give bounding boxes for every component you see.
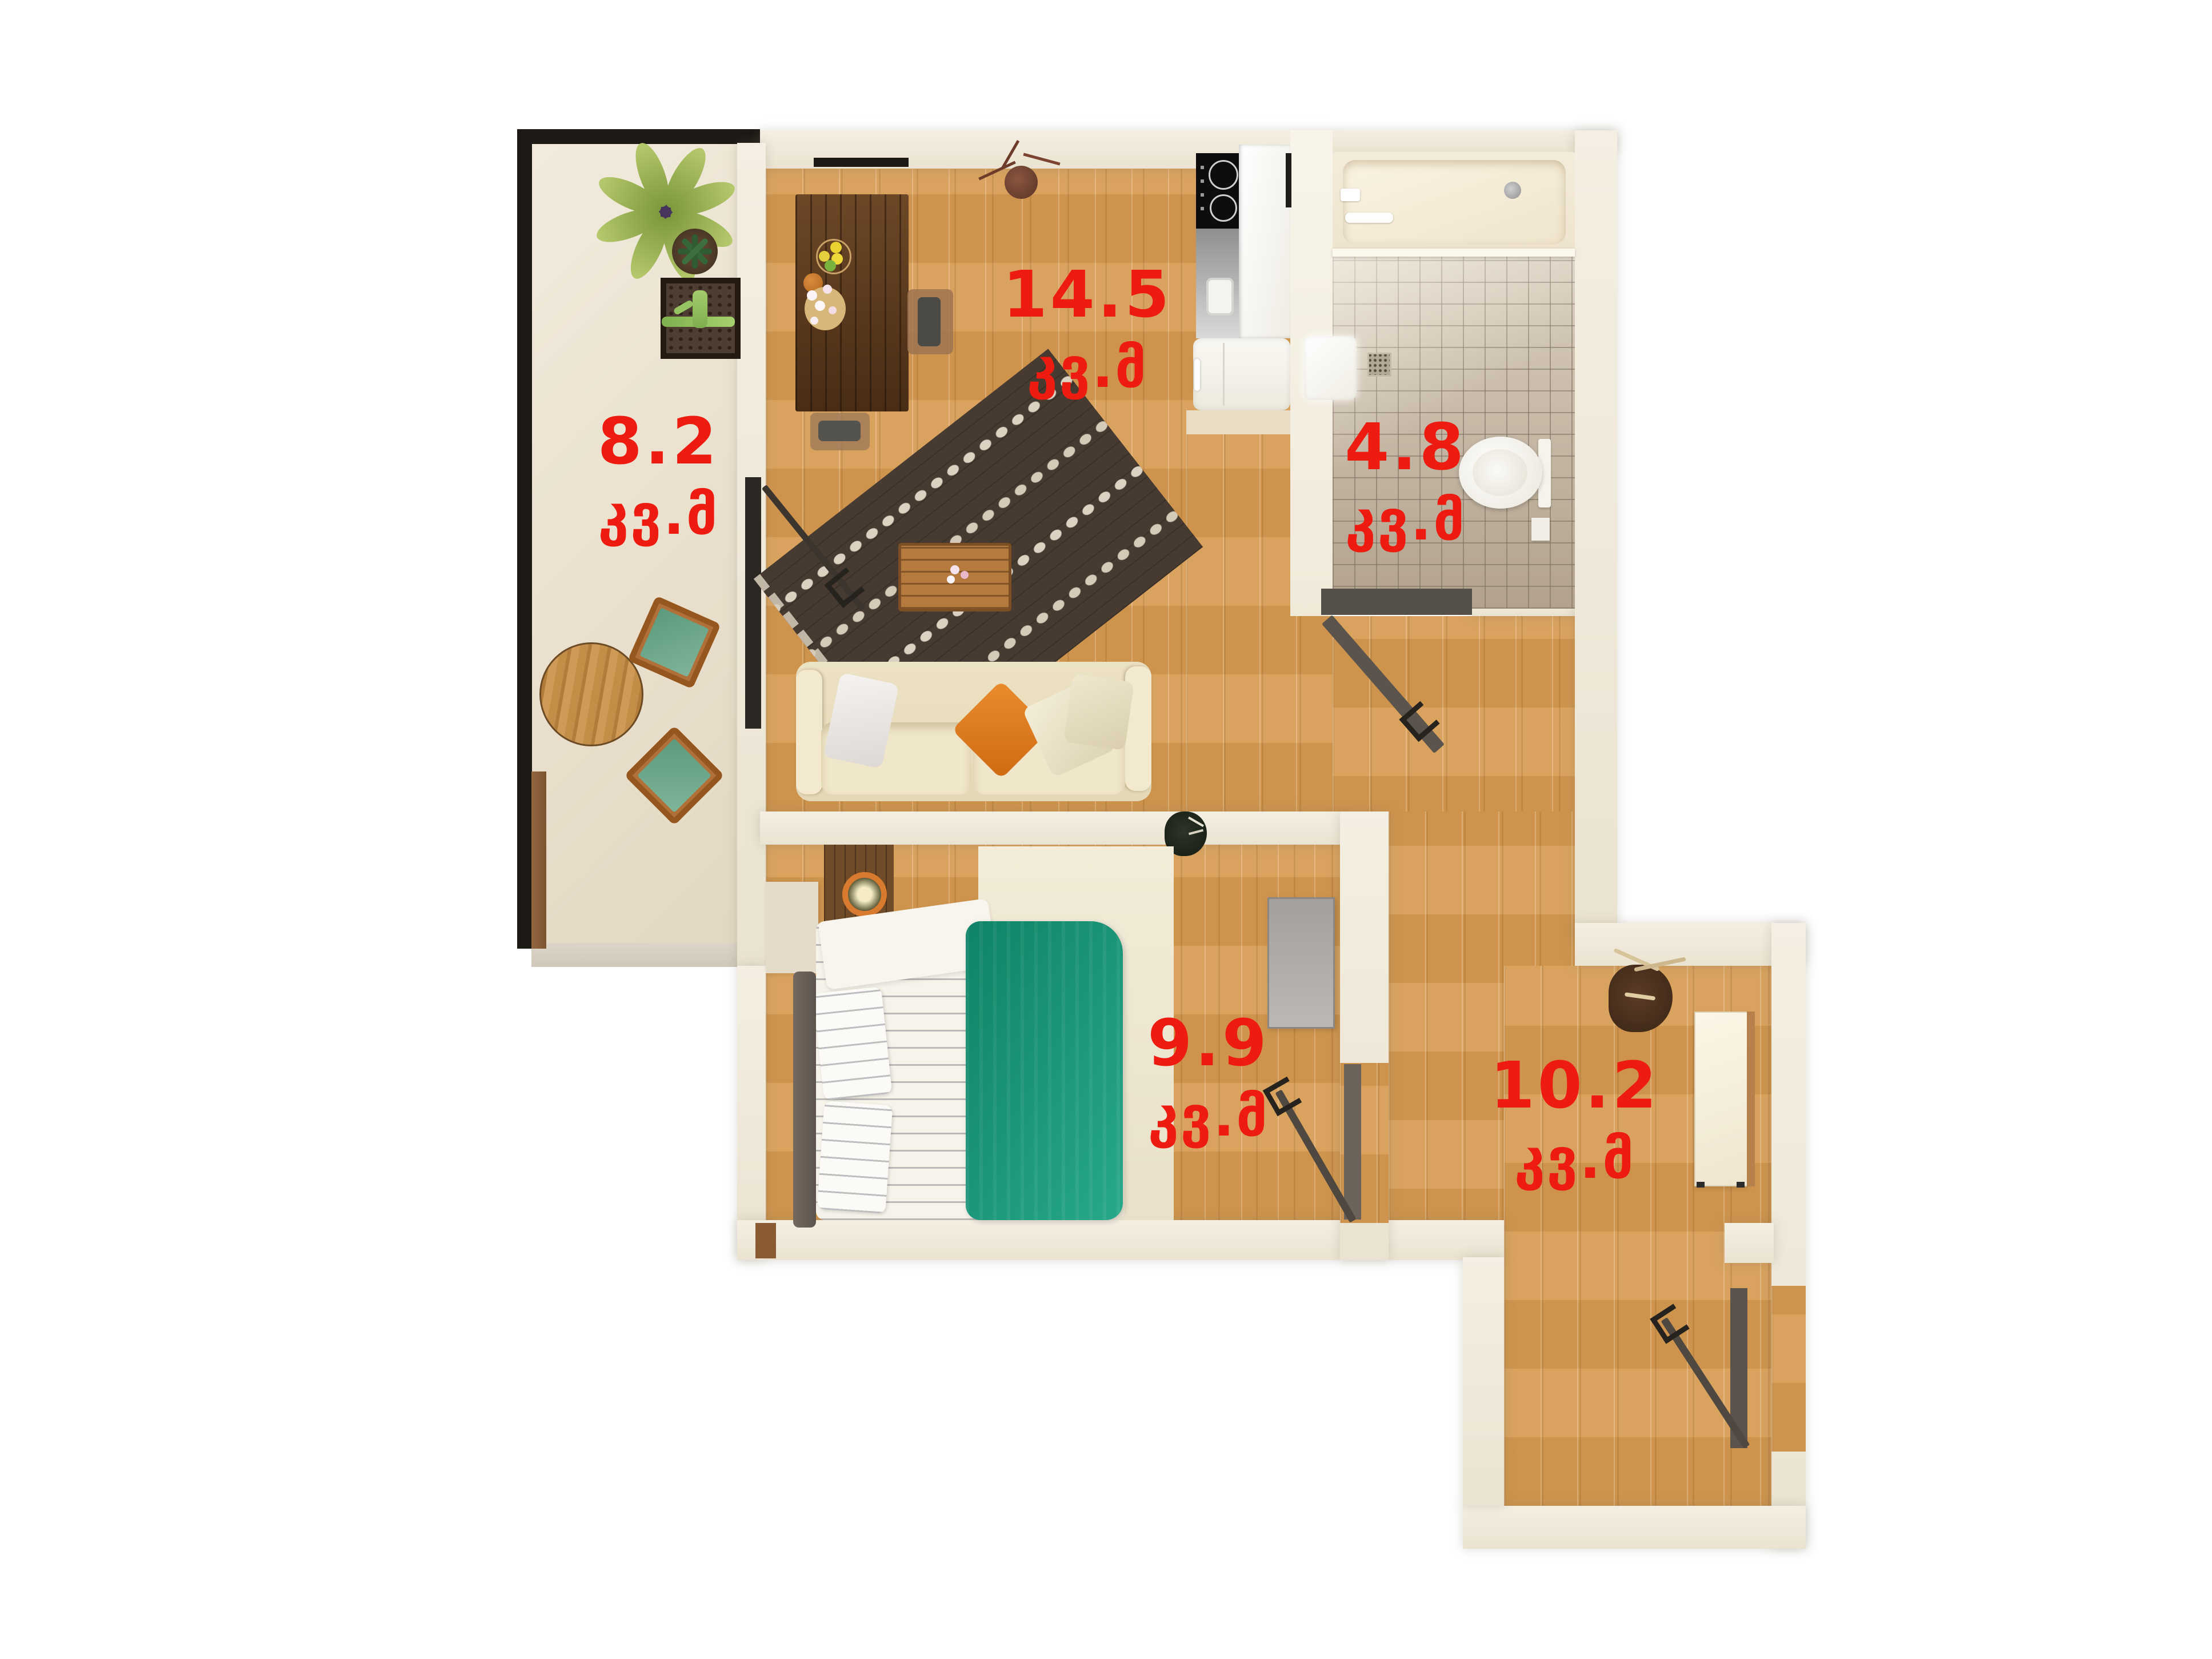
bedroom-door-bar — [1344, 1064, 1361, 1220]
coffee-table — [898, 543, 1011, 611]
tub-faucet-spout — [1345, 213, 1393, 223]
balcony-window-frame-left — [517, 129, 532, 949]
bathroom-sink — [1304, 336, 1357, 400]
wall-lower-hall-left — [1463, 1257, 1504, 1506]
flower — [947, 575, 955, 583]
balcony-area-label: 8.2 კვ.მ — [543, 403, 774, 549]
area-value: 10.2 — [1457, 1047, 1693, 1125]
dried-plant-vase — [971, 143, 1063, 217]
wall-entry-jamb — [1725, 1223, 1774, 1263]
chair-cushion — [918, 297, 941, 346]
sofa — [796, 662, 1151, 801]
balcony-round-table — [539, 642, 643, 746]
kitchen-mat — [1186, 410, 1290, 434]
bed-pillow — [817, 1101, 893, 1214]
chair-cushion — [818, 421, 861, 441]
cooktop-knob — [1201, 207, 1204, 210]
area-value: 4.8 — [1289, 409, 1523, 487]
wall-lower-hall-right — [1771, 923, 1806, 1549]
wardrobe-side — [1747, 1012, 1755, 1186]
wall-living-bedroom — [760, 811, 1340, 845]
flower — [807, 290, 817, 301]
balcony-bench-plank — [531, 771, 546, 949]
bathroom-door-bar — [1321, 589, 1472, 615]
cooktop-knob — [1201, 179, 1204, 183]
wall-bedroom-left — [737, 966, 766, 1260]
wall-right-upper — [1575, 130, 1617, 937]
sofa-armrest-left — [796, 670, 822, 794]
small-potted-plant — [667, 224, 722, 279]
tub-faucet-knob — [1341, 189, 1360, 201]
dining-table — [795, 194, 909, 411]
toilet-paper-holder — [1531, 518, 1550, 541]
flower — [950, 565, 959, 574]
hall-wardrobe — [1694, 1012, 1748, 1186]
area-value: 14.5 — [973, 256, 1202, 334]
floor-drain — [1367, 353, 1391, 377]
dining-chair-bottom — [810, 413, 870, 450]
tub-ledge — [1333, 249, 1575, 257]
hallway-area-label: 10.2 კვ.მ — [1457, 1047, 1693, 1193]
kitchen-tall-unit — [1239, 145, 1290, 338]
bed — [816, 921, 1125, 1220]
flower — [961, 571, 969, 579]
wardrobe-foot — [1697, 1182, 1705, 1188]
bathtub-basin — [1343, 160, 1566, 245]
floor-plan: 14.5 კვ.მ 8.2 კვ.მ 4.8 კვ.მ 9.9 კვ.მ 10.… — [0, 0, 2212, 1659]
fruit-bowl — [816, 239, 851, 274]
area-unit: კვ.მ — [1289, 487, 1523, 554]
door-seam — [1223, 343, 1225, 406]
dried-branch — [1023, 153, 1060, 166]
cooktop-knob — [1201, 166, 1204, 169]
wardrobe-foot — [1737, 1182, 1745, 1188]
kitchen-sink — [1206, 278, 1234, 315]
lime — [825, 260, 836, 271]
balcony-bottom-wall — [531, 943, 760, 967]
flower — [810, 317, 818, 325]
chair-cushion — [639, 607, 709, 677]
planter-box — [661, 278, 741, 359]
bed-pillow — [813, 986, 893, 1101]
wall-bedroom-bottom — [737, 1220, 1504, 1260]
burner — [1210, 194, 1237, 222]
wall-lower-hall-bottom — [1463, 1506, 1806, 1549]
flower — [815, 301, 825, 311]
table-lamp — [842, 872, 887, 917]
area-unit: კვ.მ — [1091, 1083, 1326, 1150]
area-unit: კვ.მ — [973, 334, 1202, 402]
living-window-bar — [814, 158, 909, 167]
area-unit: კვ.მ — [543, 481, 774, 549]
cooktop-knob — [1201, 193, 1204, 197]
unit-edge — [1286, 153, 1291, 207]
headboard — [793, 972, 816, 1228]
bedroom-area-label: 9.9 კვ.მ — [1091, 1005, 1326, 1150]
bamboo-stem — [673, 299, 694, 315]
rack-stick — [1625, 992, 1655, 1000]
flower — [829, 306, 837, 314]
hall-floor-under-bathroom — [1333, 616, 1575, 845]
area-value: 8.2 — [543, 403, 774, 481]
area-unit: კვ.მ — [1457, 1125, 1693, 1193]
living-room-area-label: 14.5 კვ.მ — [973, 256, 1202, 402]
tub-drain — [1504, 182, 1521, 199]
bathroom-area-label: 4.8 კვ.მ — [1289, 409, 1523, 554]
bamboo-stem — [693, 290, 707, 328]
bathtub — [1333, 152, 1575, 256]
entry-doorway — [1771, 1286, 1806, 1452]
kitchen-counter — [1196, 229, 1239, 338]
plant-leaf — [1189, 829, 1203, 836]
area-value: 9.9 — [1091, 1005, 1326, 1083]
cream-pillow — [1063, 674, 1134, 750]
washing-machine — [1193, 338, 1290, 410]
bedside-stool — [766, 882, 818, 973]
lemon — [830, 242, 842, 253]
bedroom-window-sill — [755, 1223, 776, 1258]
vase — [1005, 166, 1038, 199]
dining-chair-right — [907, 289, 953, 354]
flower — [823, 285, 832, 294]
burner — [1209, 160, 1238, 190]
cooktop — [1196, 153, 1239, 229]
balcony-window-frame-top — [517, 129, 760, 144]
